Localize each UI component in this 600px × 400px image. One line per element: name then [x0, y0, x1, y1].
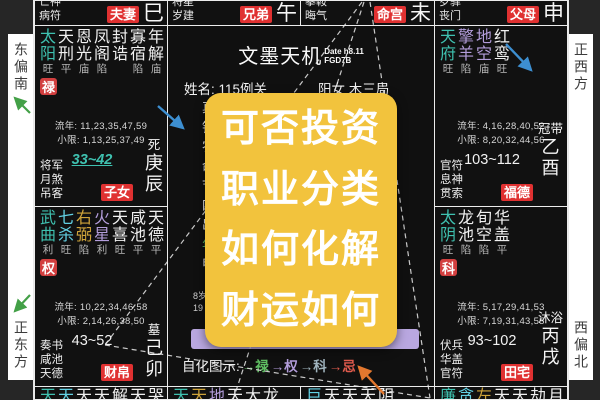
app-title: 文墨天机 — [238, 40, 322, 69]
palace-label-fortune: 福德 — [501, 184, 533, 201]
sticker-question-line: 可否投资 — [221, 105, 381, 153]
question-sticker-overlay: 可否投资职业分类如何化解财运如何 — [205, 93, 397, 347]
sihua-badge-ke: 科 — [440, 259, 457, 276]
star-row-cut: 廉贪左天天劫月 — [439, 388, 565, 400]
star-column: 擎羊陷 — [457, 29, 475, 76]
life-stage-column: 死 庚 辰 — [145, 138, 163, 195]
compass-label-east-south: 东偏南 — [8, 42, 33, 93]
star-column: 凤阁陷 — [93, 29, 111, 76]
star-row: 太阴旺龙池陷旬空陷华盖平 — [439, 210, 511, 257]
star-column: 天府旺 — [439, 29, 457, 76]
star-column: 寡宿陷 — [129, 29, 147, 76]
star-column: 太阳旺 — [39, 29, 57, 76]
palace-cell-wealth[interactable]: 武曲利七杀旺右弼陷火星利天喜旺咸池平天德平 权 流年: 10,22,34,46,… — [34, 206, 168, 387]
star-column: 恩光庙 — [75, 29, 93, 76]
palace-label-property: 田宅 — [501, 364, 533, 381]
palace-label-wealth: 财帛 — [101, 364, 133, 381]
palace-cell-fortune[interactable]: 天府旺擎羊陷地空庙红鸾旺 流年: 4,16,28,40,52 小限: 8,20,… — [434, 25, 568, 207]
palace-cell-siblings[interactable]: 将星岁建 兄弟 午 — [167, 0, 301, 26]
sihua-badge-quan: 权 — [40, 259, 57, 276]
palace-label-siblings: 兄弟 — [240, 6, 272, 23]
compass-label-west-north: 西偏北 — [569, 320, 593, 371]
star-column: 旬空陷 — [475, 210, 493, 257]
life-stage-column: 沐浴 丙 戌 — [538, 311, 563, 368]
star-row: 武曲利七杀旺右弼陷火星利天喜旺咸池平天德平 — [39, 210, 165, 257]
star-column: 天刑平 — [57, 29, 75, 76]
palace-minor-stars: 将星岁建 — [172, 0, 194, 23]
palace-label-children: 子女 — [101, 184, 133, 201]
compass-label-west: 正西方 — [569, 42, 593, 93]
star-column: 右弼陷 — [75, 210, 93, 257]
corner-block — [569, 0, 600, 34]
app-version: Date h8.11FGD7B — [324, 47, 364, 65]
palace-cell-bottom-3[interactable]: 巨天天天阴 — [300, 386, 435, 400]
palace-minor-stars: 伏兵华盖官符 — [440, 339, 463, 381]
star-column: 年解庙 — [147, 29, 165, 76]
liunian-ages: 流年: 10,22,34,46,58 — [35, 299, 167, 313]
star-column: 红鸾旺 — [493, 29, 511, 76]
corner-block — [0, 0, 33, 34]
palace-minor-stars: 将军月煞吊客 — [40, 159, 63, 201]
sticker-question-line: 职业分类 — [221, 166, 381, 214]
palace-minor-stars: 亡神病符 — [39, 0, 61, 23]
legend-item: →科 — [300, 359, 327, 374]
star-row: 太阳旺天刑平恩光庙凤阁陷封诰 寡宿陷年解庙 — [39, 29, 165, 76]
star-column: 咸池平 — [129, 210, 147, 257]
palace-label-life: 命宫 — [374, 6, 406, 23]
palace-minor-stars: 官符息神贯索 — [440, 159, 463, 201]
palace-label-parents: 父母 — [507, 6, 539, 23]
palace-cell-parents[interactable]: 岁驿丧门 父母 申 — [434, 0, 568, 26]
sihua-badge-lu: 禄 — [40, 78, 57, 95]
legend-item: →禄 — [242, 359, 269, 374]
sihua-legend: 自化图示:→禄→权→科→忌 — [182, 355, 356, 375]
star-row: 天府旺擎羊陷地空庙红鸾旺 — [439, 29, 511, 76]
star-column: 七杀旺 — [57, 210, 75, 257]
palace-cell-spouse[interactable]: 亡神病符 夫妻 巳 — [34, 0, 168, 26]
palace-minor-stars: 攀鞍晦气 — [305, 0, 327, 23]
corner-block — [0, 382, 33, 400]
star-column: 太阴旺 — [439, 210, 457, 257]
corner-block — [569, 382, 600, 400]
branch-char: 巳 — [143, 3, 164, 25]
star-row-cut: 天天天天解天哭 — [39, 388, 165, 400]
star-column: 武曲利 — [39, 210, 57, 257]
palace-cell-children[interactable]: 太阳旺天刑平恩光庙凤阁陷封诰 寡宿陷年解庙 禄 流年: 11,23,35,47,… — [34, 25, 168, 207]
palace-cell-bottom-1[interactable]: 天天天天解天哭 — [34, 386, 168, 400]
legend-item: →权 — [271, 359, 298, 374]
palace-label-spouse: 夫妻 — [107, 6, 139, 23]
branch-char: 未 — [410, 3, 431, 25]
star-column: 封诰 — [111, 29, 129, 76]
palace-cell-property[interactable]: 太阴旺龙池陷旬空陷华盖平 科 流年: 5,17,29,41,53 小限: 7,1… — [434, 206, 568, 387]
star-column: 龙池陷 — [457, 210, 475, 257]
star-row-cut: 天天地天大龙 — [172, 388, 280, 400]
compass-label-east: 正东方 — [8, 320, 33, 371]
palace-cell-life[interactable]: 攀鞍晦气 命宫 未 — [300, 0, 435, 26]
branch-char: 午 — [276, 3, 297, 25]
sticker-question-line: 如何化解 — [221, 226, 381, 274]
life-stage-column: 墓 己 卯 — [145, 323, 163, 380]
star-row-cut: 巨天天天阴 — [305, 388, 395, 400]
star-column: 火星利 — [93, 210, 111, 257]
star-column: 地空庙 — [475, 29, 493, 76]
palace-cell-bottom-2[interactable]: 天天地天大龙 — [167, 386, 301, 400]
sticker-question-line: 财运如何 — [221, 287, 381, 335]
palace-cell-bottom-4[interactable]: 廉贪左天天劫月 — [434, 386, 568, 400]
palace-minor-stars: 岁驿丧门 — [439, 0, 461, 23]
life-stage-column: 冠带 乙 酉 — [538, 122, 563, 179]
branch-char: 申 — [543, 3, 564, 25]
liunian-ages: 流年: 11,23,35,47,59 — [35, 118, 167, 132]
legend-item: →忌 — [329, 359, 356, 374]
star-column: 天德平 — [147, 210, 165, 257]
palace-minor-stars: 奏书咸池天德 — [40, 339, 63, 381]
star-column: 华盖平 — [493, 210, 511, 257]
star-column: 天喜旺 — [111, 210, 129, 257]
